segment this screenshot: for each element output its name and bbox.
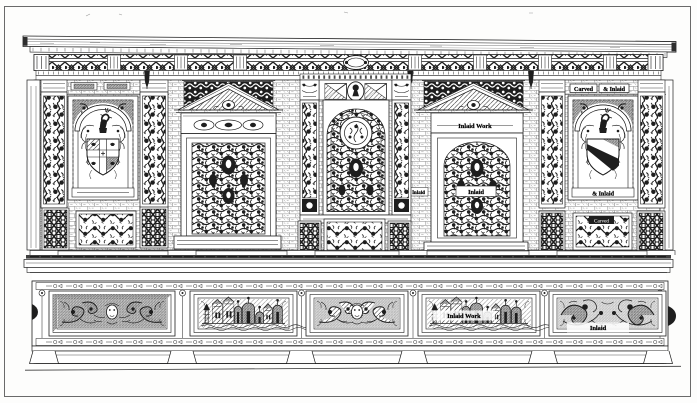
svg-text:& Inlaid: & Inlaid bbox=[603, 87, 626, 93]
svg-text:Carved: Carved bbox=[594, 218, 609, 224]
svg-text:Inlaid Work: Inlaid Work bbox=[458, 123, 492, 130]
svg-text:Inlaid: Inlaid bbox=[412, 191, 425, 196]
svg-text:& Inlaid: & Inlaid bbox=[592, 191, 615, 197]
svg-text:Inlaid Work: Inlaid Work bbox=[447, 313, 481, 320]
svg-text:Carved: Carved bbox=[574, 87, 594, 93]
svg-text:Inlaid: Inlaid bbox=[468, 189, 484, 196]
svg-text:Inlaid: Inlaid bbox=[590, 325, 607, 332]
